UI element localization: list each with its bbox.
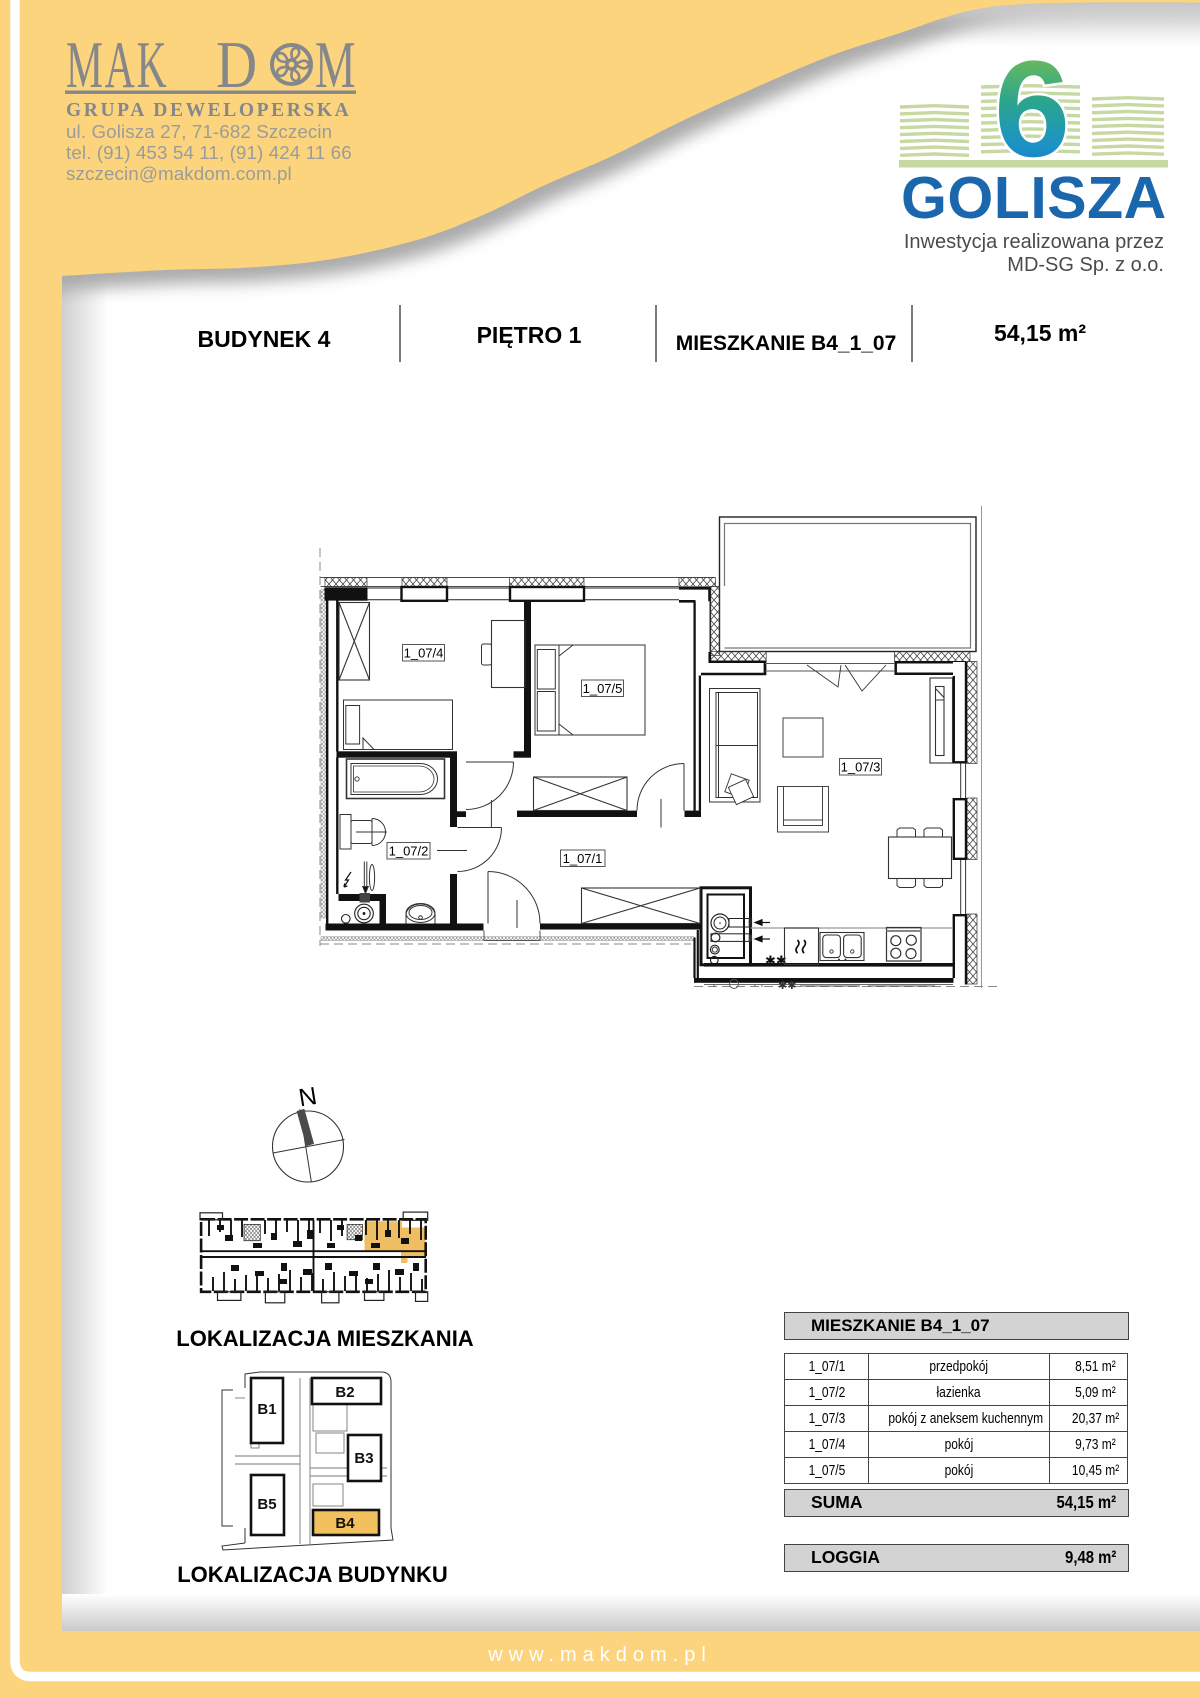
svg-text:B2: B2 (335, 1384, 354, 1401)
svg-text:GOLISZA: GOLISZA (901, 165, 1167, 231)
svg-text:✱✱: ✱✱ (765, 953, 787, 968)
svg-text:1_07/2: 1_07/2 (389, 844, 429, 859)
svg-text:ul. Golisza 27, 71-682 Szczeci: ul. Golisza 27, 71-682 Szczecin (66, 121, 332, 142)
svg-text:PIĘTRO 1: PIĘTRO 1 (477, 322, 582, 348)
svg-text:GRUPA DEWELOPERSKA: GRUPA DEWELOPERSKA (66, 100, 351, 121)
svg-text:1_07/5: 1_07/5 (583, 681, 623, 696)
svg-text:1_07/1: 1_07/1 (563, 851, 603, 866)
svg-text:tel. (91) 453 54 11, (91) 424: tel. (91) 453 54 11, (91) 424 11 66 (66, 142, 352, 163)
svg-text:1_07/4: 1_07/4 (404, 646, 444, 661)
svg-text:B4: B4 (335, 1515, 355, 1532)
svg-text:BUDYNEK 4: BUDYNEK 4 (198, 326, 331, 352)
svg-text:szczecin@makdom.com.pl: szczecin@makdom.com.pl (66, 163, 292, 184)
svg-text:✱✱: ✱✱ (778, 980, 796, 992)
svg-text:B5: B5 (257, 1496, 276, 1513)
svg-text:6: 6 (994, 33, 1070, 186)
svg-text:Inwestycja realizowana przez: Inwestycja realizowana przez (904, 231, 1164, 253)
svg-text:B3: B3 (354, 1450, 373, 1467)
svg-text:1_07/3: 1_07/3 (841, 760, 881, 775)
svg-text:MIESZKANIE B4_1_07: MIESZKANIE B4_1_07 (676, 332, 897, 355)
svg-text:N: N (297, 1085, 319, 1112)
svg-text:54,15 m²: 54,15 m² (994, 320, 1086, 346)
svg-text:MD-SG Sp. z o.o.: MD-SG Sp. z o.o. (1007, 254, 1164, 276)
svg-text:B1: B1 (257, 1401, 276, 1418)
